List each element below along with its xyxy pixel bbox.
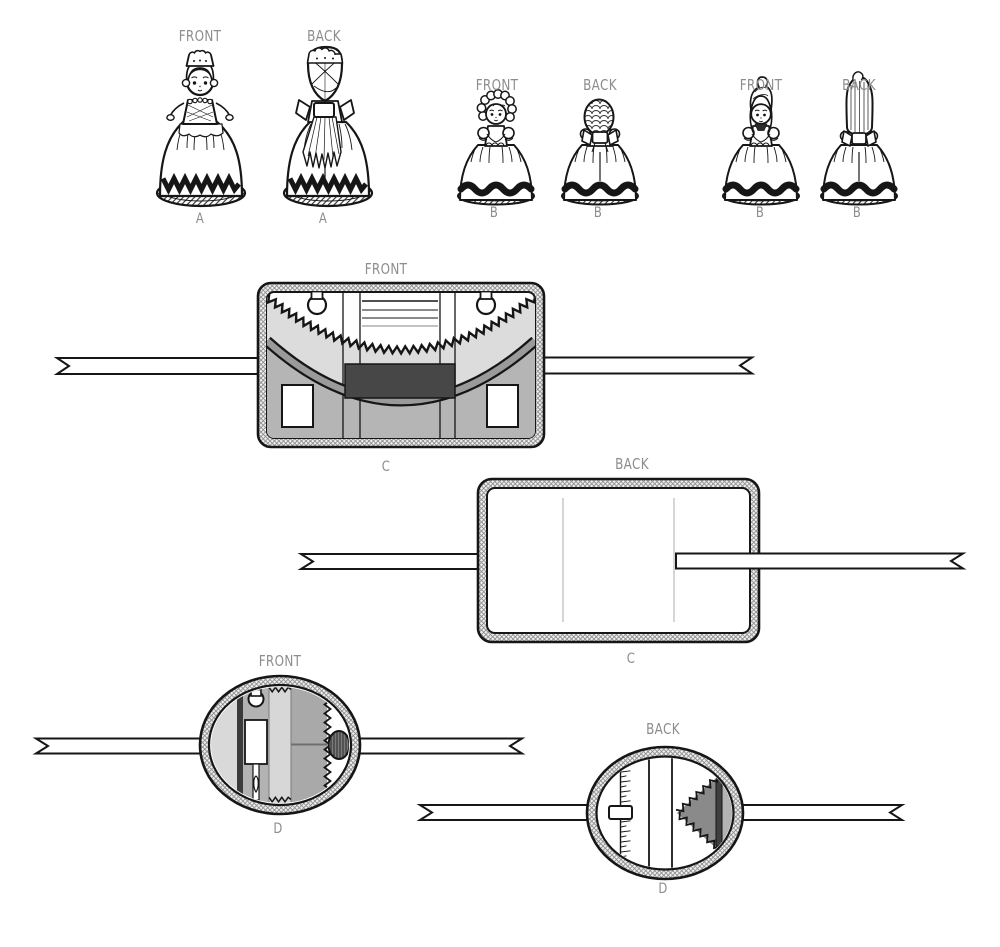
- side-pocket-left: [282, 385, 313, 427]
- view-label-d-back: BACK: [646, 720, 680, 738]
- roll-d-front-illustration: [36, 676, 522, 814]
- view-label-a-back: BACK: [307, 27, 341, 45]
- doll-a-front-illustration: [157, 51, 245, 206]
- center-pocket: [345, 364, 455, 398]
- view-label-b2-back: BACK: [842, 76, 876, 94]
- emery-cushion: [329, 731, 350, 759]
- view-label-b1-back: BACK: [583, 76, 617, 94]
- piece-letter-b1-front: B: [490, 205, 498, 221]
- waist-tie-left: [57, 358, 272, 374]
- piece-letter-d-front: D: [273, 821, 282, 837]
- view-label-d-front: FRONT: [259, 652, 302, 670]
- view-label-b2-front: FRONT: [740, 76, 783, 94]
- needle-item: [254, 776, 259, 792]
- waist-tie-right: [530, 358, 752, 374]
- side-pocket-right: [487, 385, 518, 427]
- piece-letter-c-back: C: [627, 651, 635, 667]
- view-label-c-back: BACK: [615, 455, 649, 473]
- piece-letter-a-back: A: [319, 211, 327, 227]
- piece-letter-b1-back: B: [594, 205, 602, 221]
- gauge-slider: [609, 806, 632, 819]
- doll-a-back-illustration: [284, 47, 372, 206]
- view-label-a-front: FRONT: [179, 27, 222, 45]
- tool-pocket: [245, 720, 267, 764]
- organizer-c-back-illustration: [301, 479, 963, 642]
- doll-b-curly-back-illustration: [562, 100, 638, 205]
- doll-b-longhair-front-illustration: [723, 77, 799, 205]
- doll-b-curly-front-illustration: [458, 90, 534, 205]
- pattern-sheet: FRONT BACK A A FRONT BACK B B FRONT BACK…: [0, 0, 1000, 947]
- organizer-c-front-illustration: [57, 283, 752, 447]
- line-art: [0, 0, 1000, 947]
- roll-d-back-illustration: [420, 747, 902, 879]
- piece-letter-a-front: A: [196, 211, 204, 227]
- scissor-loop-left: [308, 292, 326, 315]
- waist-tie-right: [345, 739, 522, 754]
- view-label-b1-front: FRONT: [476, 76, 519, 94]
- waist-tie-left: [420, 805, 602, 820]
- view-label-c-front: FRONT: [365, 260, 408, 278]
- piece-letter-b2-front: B: [756, 205, 764, 221]
- piece-letter-d-back: D: [658, 881, 667, 897]
- waist-tie-right: [728, 805, 902, 820]
- piece-letter-b2-back: B: [853, 205, 861, 221]
- piece-letter-c-front: C: [382, 459, 390, 475]
- scissor-loop-right: [477, 292, 495, 315]
- waist-tie-right: [676, 554, 963, 569]
- waist-tie-left: [301, 554, 490, 569]
- waist-tie-left: [36, 739, 215, 754]
